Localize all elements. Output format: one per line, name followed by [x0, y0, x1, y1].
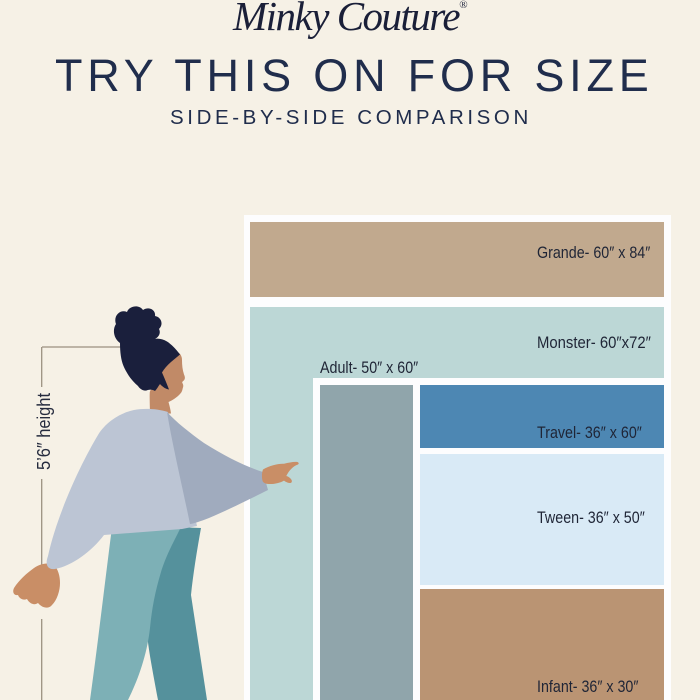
svg-text:5’6″ height: 5’6″ height: [34, 393, 54, 470]
